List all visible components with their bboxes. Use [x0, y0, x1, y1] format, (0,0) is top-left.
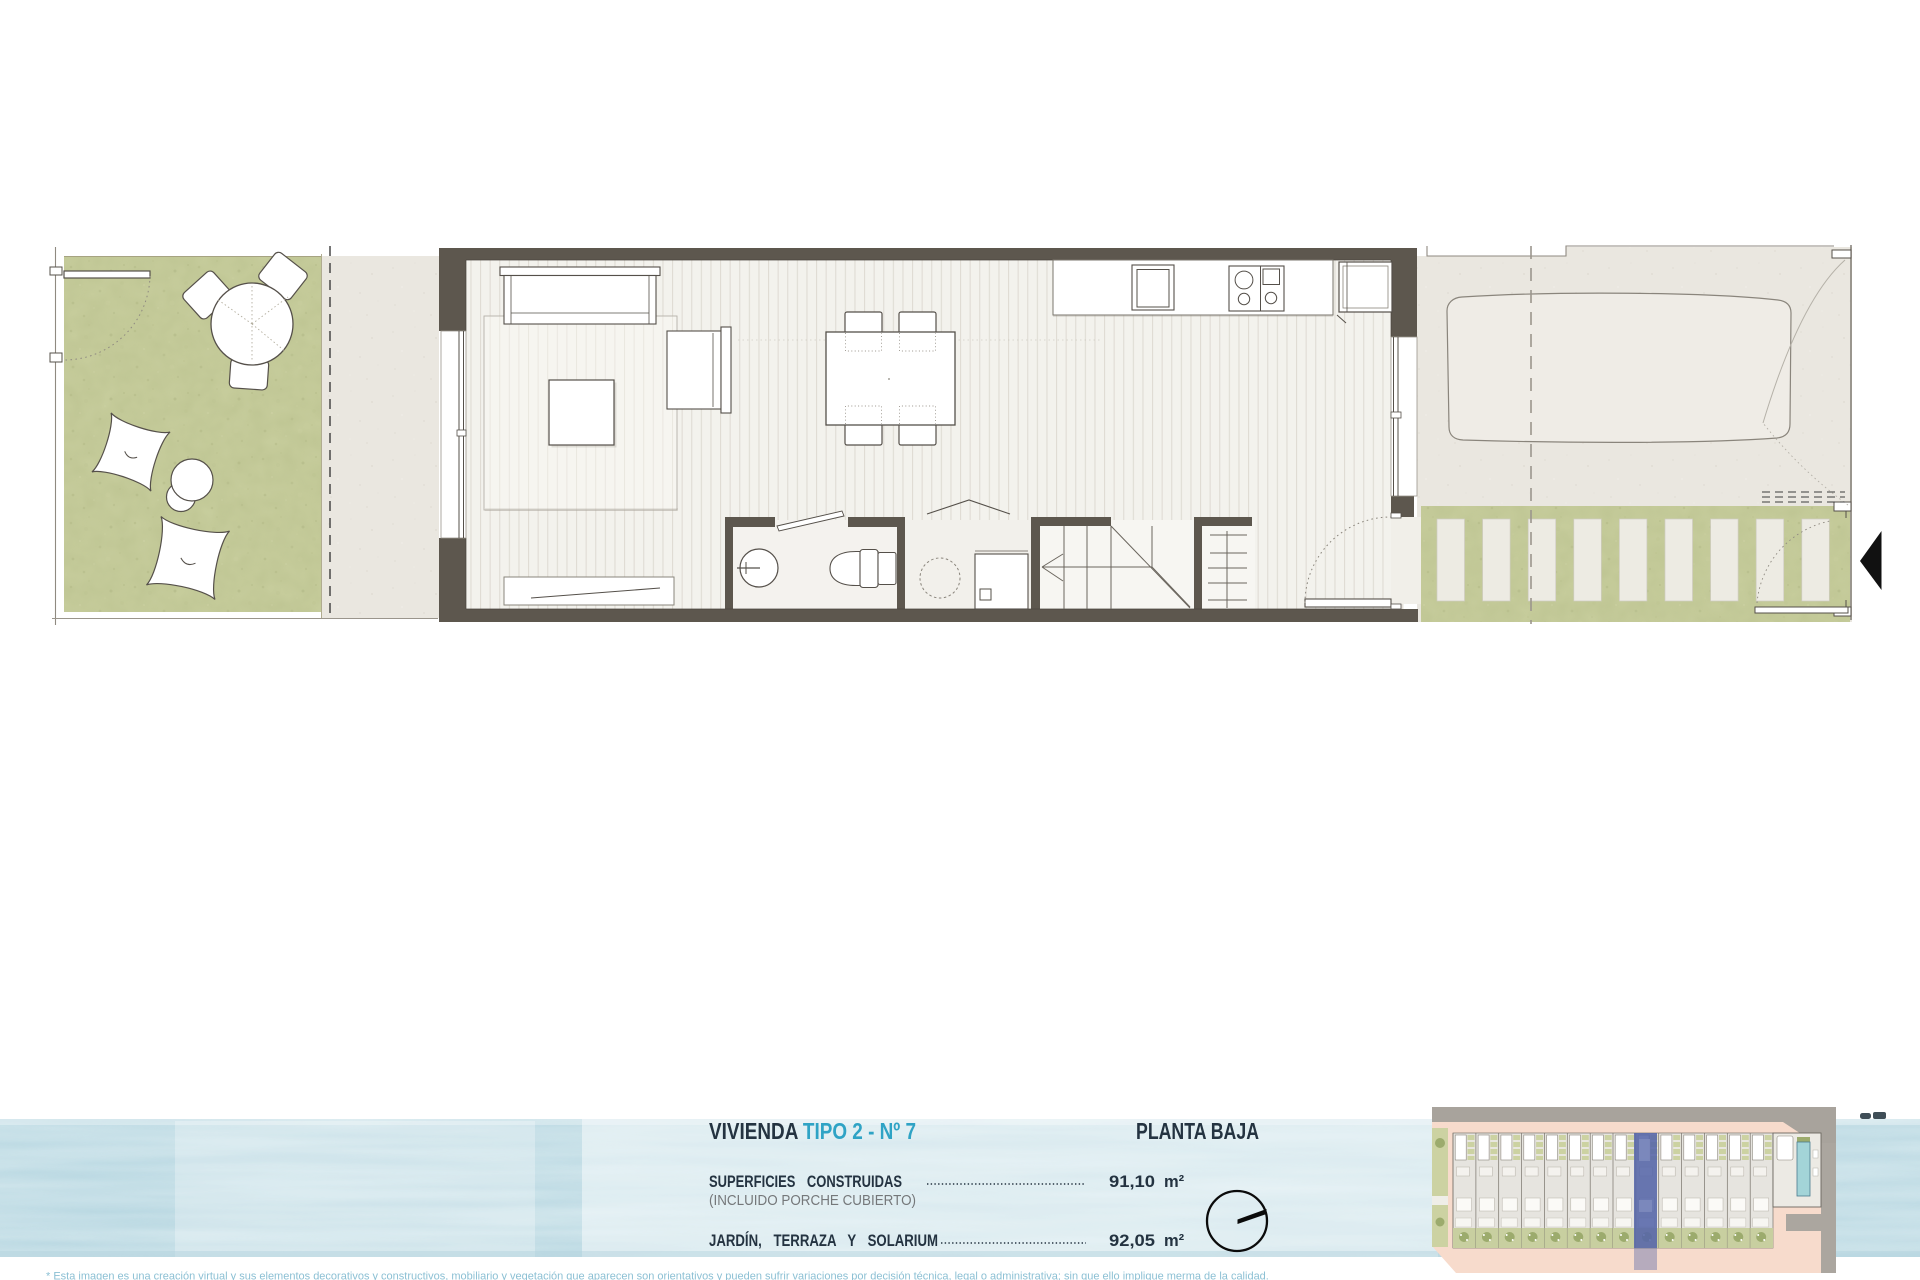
- svg-text:92,05: 92,05: [1109, 1232, 1155, 1250]
- svg-text:91,10: 91,10: [1109, 1173, 1155, 1191]
- svg-text:VIVIENDA TIPO 2 - Nº 7: VIVIENDA TIPO 2 - Nº 7: [709, 1118, 916, 1144]
- svg-text:* Esta imagen es una creación: * Esta imagen es una creación virtual y …: [46, 1271, 1269, 1280]
- svg-text:SUPERFICIES CONSTRUIDAS: SUPERFICIES CONSTRUIDAS: [709, 1173, 902, 1191]
- svg-text:PLANTA BAJA: PLANTA BAJA: [1136, 1118, 1259, 1144]
- svg-text:JARDÍN, TERRAZA Y SOLARIUM: JARDÍN, TERRAZA Y SOLARIUM: [709, 1231, 938, 1250]
- svg-text:m²: m²: [1164, 1173, 1185, 1191]
- svg-text:m²: m²: [1164, 1232, 1185, 1250]
- svg-text:(INCLUIDO PORCHE CUBIERTO): (INCLUIDO PORCHE CUBIERTO): [709, 1193, 916, 1209]
